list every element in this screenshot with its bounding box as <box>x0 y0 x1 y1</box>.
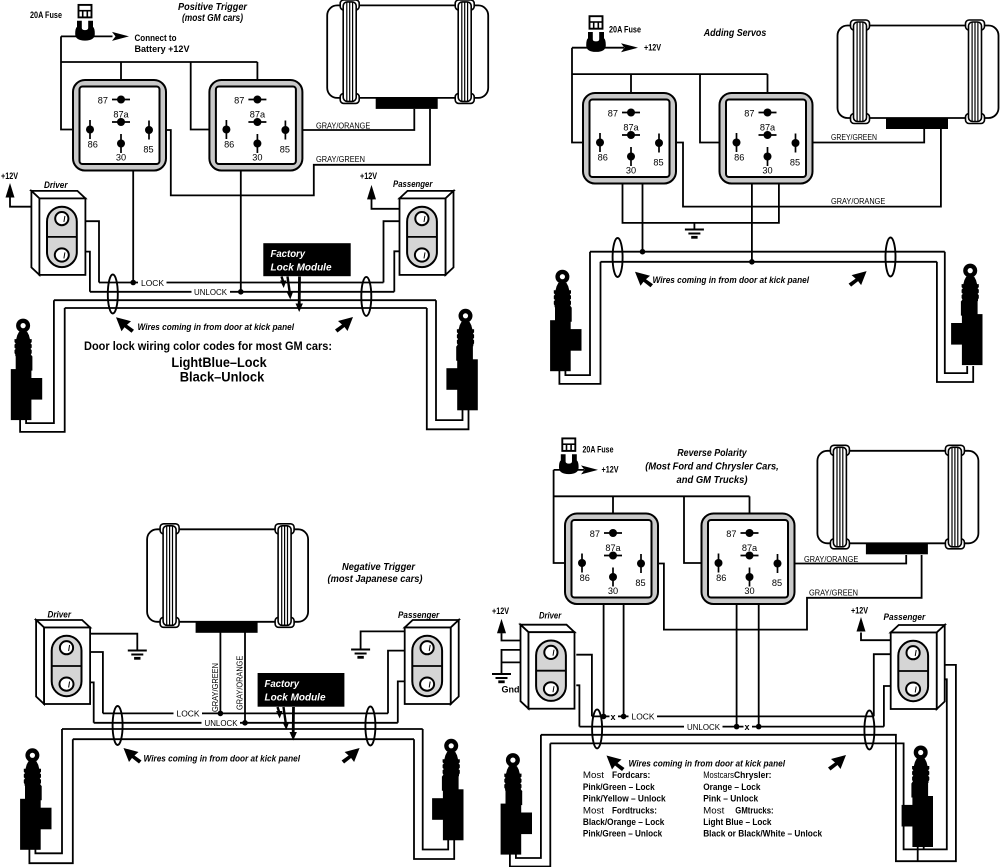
svg-text:Connect to: Connect to <box>135 33 177 43</box>
svg-text:Black/Orange – Lock: Black/Orange – Lock <box>583 817 665 828</box>
svg-text:UNLOCK: UNLOCK <box>194 287 227 297</box>
svg-text:Most: Most <box>583 806 604 817</box>
svg-text:+12V: +12V <box>1 171 18 181</box>
svg-text:Pink/Green – Unlock: Pink/Green – Unlock <box>583 829 663 840</box>
svg-text:GRAY/GREEN: GRAY/GREEN <box>809 588 858 598</box>
svg-text:Orange – Lock: Orange – Lock <box>703 782 761 793</box>
svg-text:Pink – Unlock: Pink – Unlock <box>703 794 759 805</box>
svg-text:Door lock wiring color codes f: Door lock wiring color codes for most GM… <box>84 339 332 353</box>
svg-text:Fordcars:: Fordcars: <box>612 770 650 781</box>
svg-text:UNLOCK: UNLOCK <box>205 718 238 728</box>
svg-text:GRAY/ORANGE: GRAY/ORANGE <box>804 554 859 564</box>
svg-text:20A Fuse: 20A Fuse <box>583 445 614 455</box>
svg-text:Reverse Polarity: Reverse Polarity <box>677 447 747 459</box>
svg-text:GRAY/GREEN: GRAY/GREEN <box>316 154 365 164</box>
svg-text:LOCK: LOCK <box>177 709 200 719</box>
svg-text:Black or Black/White – Unlock: Black or Black/White – Unlock <box>703 829 823 840</box>
svg-text:20A Fuse: 20A Fuse <box>609 25 641 35</box>
svg-text:Black–Unlock: Black–Unlock <box>180 369 265 385</box>
svg-text:Wires coming in from door at k: Wires coming in from door at kick panel <box>629 759 786 769</box>
svg-text:LOCK: LOCK <box>632 712 655 722</box>
svg-text:x: x <box>745 722 750 732</box>
svg-text:Passenger: Passenger <box>884 612 927 623</box>
svg-text:(most GM cars): (most GM cars) <box>182 12 243 24</box>
svg-text:Light Blue – Lock: Light Blue – Lock <box>703 817 772 828</box>
svg-text:GMtrucks:: GMtrucks: <box>735 806 773 817</box>
svg-text:GRAY/ORANGE: GRAY/ORANGE <box>831 196 886 206</box>
svg-text:Wires coming in from door at k: Wires coming in from door at kick panel <box>653 275 810 285</box>
svg-text:Gnd: Gnd <box>502 685 520 695</box>
svg-text:GREY/GREEN: GREY/GREEN <box>831 132 877 142</box>
svg-text:Lock Module: Lock Module <box>265 692 326 704</box>
svg-text:Most: Most <box>583 770 604 781</box>
svg-text:Chrysler:: Chrysler: <box>734 770 772 781</box>
svg-text:GRAY/GREEN: GRAY/GREEN <box>210 663 220 712</box>
svg-text:+12V: +12V <box>360 171 377 181</box>
svg-text:+12V: +12V <box>851 606 868 616</box>
svg-text:Driver: Driver <box>44 180 69 191</box>
svg-text:Adding Servos: Adding Servos <box>703 27 766 39</box>
svg-text:GRAY/ORANGE: GRAY/ORANGE <box>235 655 245 710</box>
svg-text:Pink/Yellow – Unlock: Pink/Yellow – Unlock <box>583 794 666 805</box>
svg-text:+12V: +12V <box>644 43 661 53</box>
svg-text:GRAY/ORANGE: GRAY/ORANGE <box>316 120 371 130</box>
svg-text:Battery +12V: Battery +12V <box>135 44 190 54</box>
svg-text:Passenger: Passenger <box>393 179 433 190</box>
svg-text:Fordtrucks:: Fordtrucks: <box>612 806 657 817</box>
svg-text:Negative Trigger: Negative Trigger <box>342 561 416 573</box>
svg-text:Driver: Driver <box>539 611 562 622</box>
svg-text:Pink/Green – Lock: Pink/Green – Lock <box>583 782 655 793</box>
svg-text:Passenger: Passenger <box>398 610 440 621</box>
svg-text:20A Fuse: 20A Fuse <box>30 10 62 20</box>
svg-text:Lock Module: Lock Module <box>271 262 332 274</box>
svg-text:+12V: +12V <box>602 465 619 475</box>
svg-text:(most Japanese cars): (most Japanese cars) <box>328 573 423 585</box>
svg-text:Wires coming in from door at k: Wires coming in from door at kick panel <box>144 754 301 764</box>
svg-text:Wires coming in from door at k: Wires coming in from door at kick panel <box>138 322 295 332</box>
svg-text:and GM Trucks): and GM Trucks) <box>677 474 748 486</box>
svg-text:Factory: Factory <box>271 248 307 260</box>
svg-text:Factory: Factory <box>265 678 301 690</box>
svg-text:+12V: +12V <box>492 606 509 616</box>
svg-text:(Most Ford and Chrysler Cars,: (Most Ford and Chrysler Cars, <box>645 461 779 473</box>
svg-text:Mostcars: Mostcars <box>703 770 734 781</box>
svg-text:LOCK: LOCK <box>141 278 164 288</box>
svg-text:Driver: Driver <box>48 610 73 621</box>
svg-text:x: x <box>611 712 616 722</box>
svg-text:UNLOCK: UNLOCK <box>687 722 720 732</box>
svg-text:Most: Most <box>703 806 724 817</box>
